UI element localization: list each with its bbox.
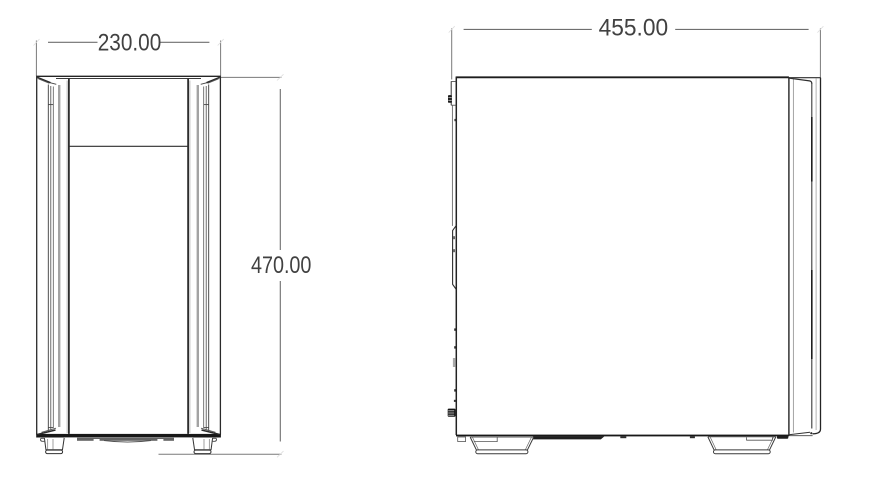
svg-text:470.00: 470.00 xyxy=(251,253,312,279)
svg-text:455.00: 455.00 xyxy=(599,15,669,41)
svg-text:230.00: 230.00 xyxy=(98,30,162,56)
